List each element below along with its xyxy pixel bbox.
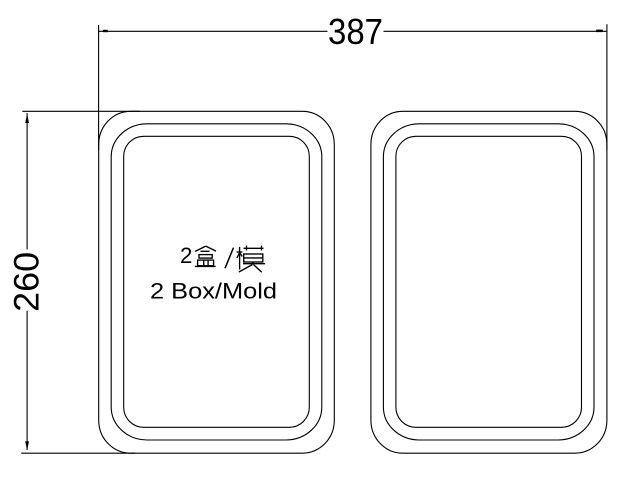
svg-text:387: 387 [328, 11, 383, 52]
svg-text:260: 260 [8, 252, 47, 312]
svg-text:2: 2 [180, 243, 192, 268]
svg-text:2 Box/Mold: 2 Box/Mold [150, 278, 277, 303]
